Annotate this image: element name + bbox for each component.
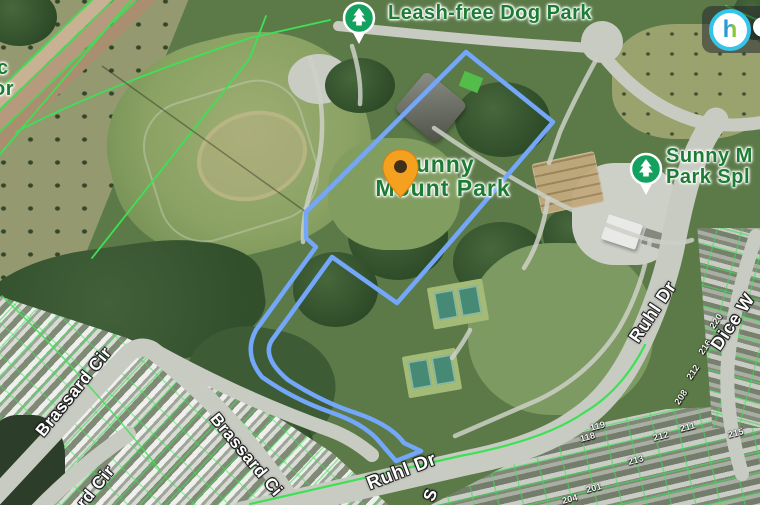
poi-label-text: Leash-free Dog Park — [388, 2, 592, 24]
selected-place-pin[interactable] — [382, 149, 419, 203]
poi-label-line2: or — [0, 79, 14, 100]
logo-letter: h — [723, 18, 738, 42]
parcel-boundary-path — [251, 52, 553, 461]
poi-label-line1: Sunny M — [666, 146, 753, 167]
field-fence — [133, 69, 329, 252]
road-network-layer — [0, 0, 760, 505]
logo-circle: h — [709, 9, 751, 51]
cadastral-line — [0, 0, 135, 160]
poi-label-line2: Park Spl — [666, 167, 753, 188]
culdesac — [581, 21, 623, 63]
cadastral-line — [92, 16, 266, 258]
pin-body — [383, 150, 418, 197]
poi-label-dog-park[interactable]: Leash-free Dog Park — [388, 3, 592, 24]
splash-pad-pin[interactable] — [628, 152, 664, 201]
poi-label-edge-fragment: c or — [0, 58, 14, 100]
app-logo-button[interactable]: h — [702, 6, 760, 53]
satellite-map[interactable]: Leash-free Dog Park Sunny Mount Park Sun… — [0, 0, 760, 505]
road-brassard-cir-b — [150, 348, 372, 455]
walking-path — [455, 240, 650, 436]
walking-path — [352, 46, 360, 104]
dog-park-pin[interactable] — [341, 1, 377, 50]
poi-label-line1: c — [0, 58, 14, 79]
path-top-right — [607, 60, 760, 125]
walking-path — [524, 198, 548, 268]
poi-label-splash-pad[interactable]: Sunny M Park Spl — [666, 146, 753, 188]
cadastral-line — [16, 20, 330, 132]
walking-path — [549, 60, 596, 163]
pin-dot — [394, 160, 407, 173]
parcel-edge-shadow — [102, 66, 306, 212]
walking-path — [452, 330, 470, 358]
